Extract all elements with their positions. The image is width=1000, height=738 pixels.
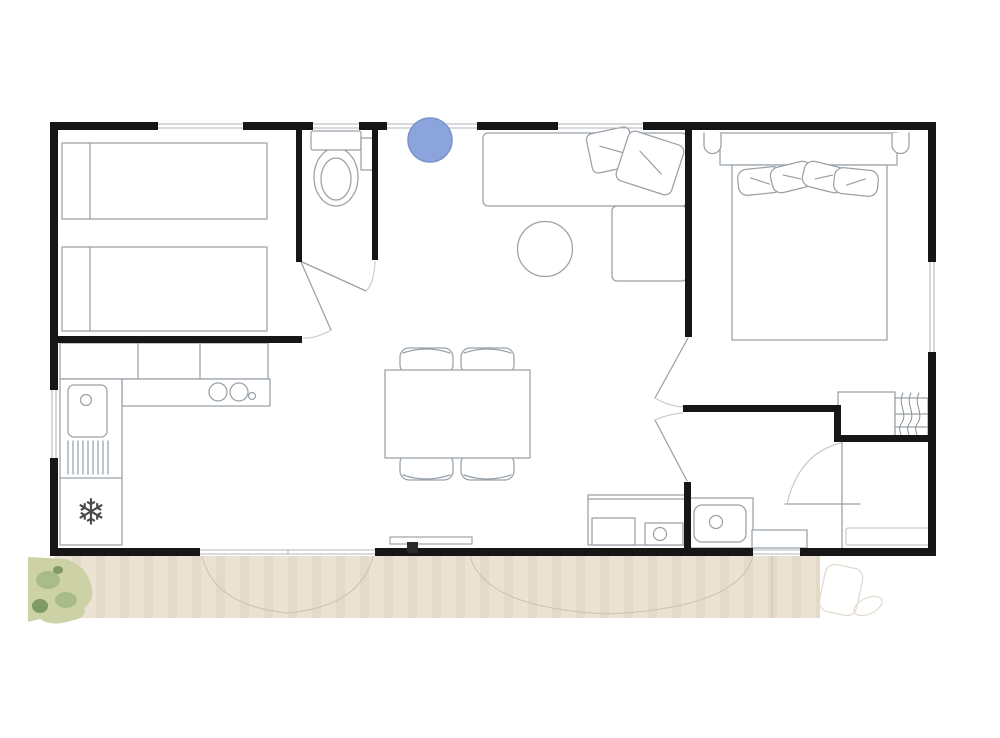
wall-segment: [50, 122, 58, 390]
wall-twin-bedroom: [58, 336, 302, 343]
toilet-cistern: [311, 131, 361, 150]
kitchen-cabinets: [60, 343, 268, 379]
wall-segment: [643, 122, 936, 130]
wall-wc-left: [296, 130, 302, 262]
cooktop-knob: [249, 393, 256, 400]
wall-closet-bottom: [834, 435, 930, 442]
sink-drain: [81, 395, 92, 406]
floorplan-svg: ❄: [0, 0, 1000, 738]
sliding-door-handle: [407, 542, 418, 553]
cooktop-burner: [209, 383, 227, 401]
low-cabinet: [752, 530, 807, 548]
washing-machine-drum: [654, 528, 667, 541]
basin-drain: [710, 516, 723, 529]
sliding-panel-inner: [375, 548, 470, 556]
wall-segment: [800, 548, 936, 556]
wall-living-bedroom: [685, 130, 692, 337]
bush-clump: [53, 566, 63, 574]
wall-segment: [50, 122, 158, 130]
bush-clump: [55, 592, 77, 608]
wall-bathroom-left: [684, 482, 691, 548]
wardrobe: [838, 392, 895, 438]
bush-clump: [32, 599, 48, 613]
faint-outdoor-sketch: [817, 563, 885, 620]
wall-segment: [477, 122, 558, 130]
twin-bed-1: [62, 143, 267, 219]
wall-bedroom-bottom: [683, 405, 840, 412]
utility-compartment: [592, 518, 635, 545]
toilet-bowl-inner: [321, 158, 351, 200]
wall-segment: [928, 122, 936, 262]
sliding-panel-outer: [390, 537, 472, 544]
faint-chair-outline: [817, 563, 864, 618]
nightstand: [704, 133, 721, 154]
wall-segment: [50, 548, 200, 556]
sofa-chaise: [612, 206, 687, 281]
wall-segment: [359, 122, 387, 130]
kitchen-sink: [68, 385, 107, 437]
entrance-marker[interactable]: [408, 118, 452, 162]
round-coffee-table: [518, 222, 573, 277]
snowflake-icon: ❄: [76, 493, 106, 534]
terrace-deck: [55, 556, 820, 618]
deck-surface: [55, 556, 820, 618]
wall-wc-right: [372, 130, 378, 260]
wall-segment: [50, 458, 58, 556]
pillow: [833, 167, 879, 197]
wall-segment: [470, 548, 753, 556]
dining-table: [385, 370, 530, 458]
twin-bed-2: [62, 247, 267, 331]
floorplan-canvas: ❄: [0, 0, 1000, 738]
faint-object-outline: [851, 592, 885, 619]
nightstand: [892, 133, 909, 154]
wall-segment: [243, 122, 313, 130]
cooktop-burner: [230, 383, 248, 401]
wall-segment: [928, 352, 936, 556]
headboard: [720, 133, 897, 165]
